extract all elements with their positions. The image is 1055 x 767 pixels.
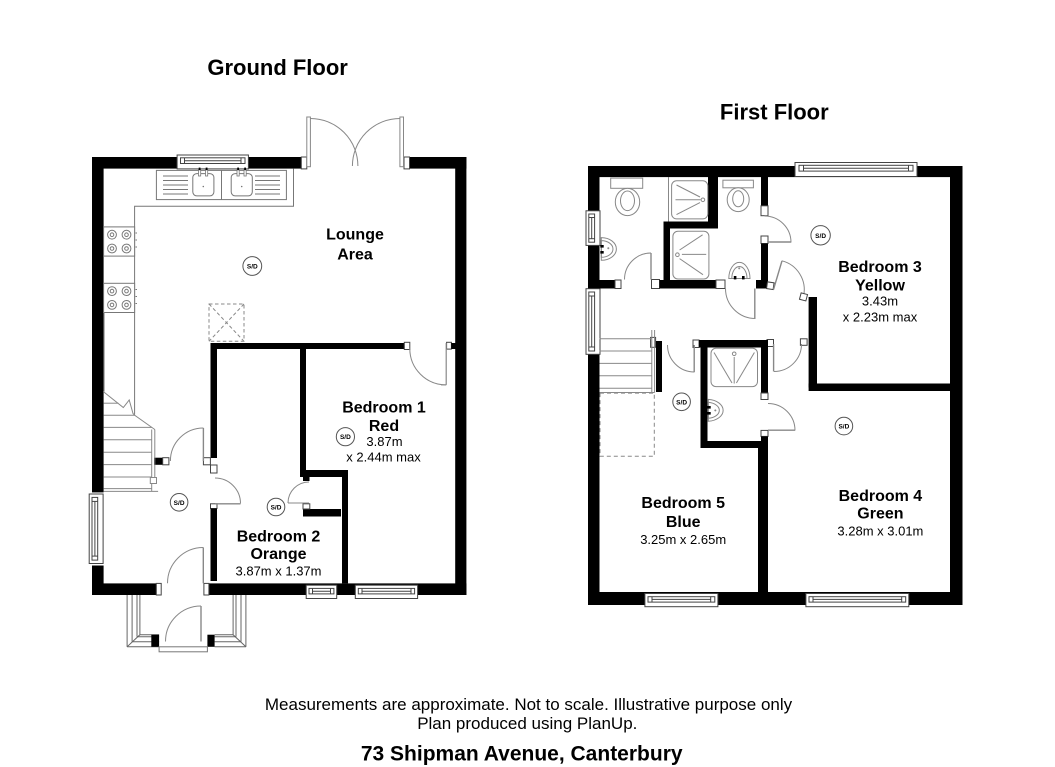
svg-text:Blue: Blue [666,514,701,531]
svg-text:S/D: S/D [815,233,826,240]
svg-text:S/D: S/D [676,399,687,406]
svg-text:Bedroom 1: Bedroom 1 [342,400,426,417]
svg-text:x 2.23m max: x 2.23m max [843,310,918,325]
svg-text:Bedroom 4: Bedroom 4 [839,488,923,505]
svg-text:S/D: S/D [838,424,849,431]
svg-text:x 2.44m max: x 2.44m max [346,450,421,465]
svg-text:73 Shipman Avenue, Canterbury: 73 Shipman Avenue, Canterbury [361,743,683,766]
svg-text:First Floor: First Floor [720,100,829,125]
svg-text:3.28m x 3.01m: 3.28m x 3.01m [837,523,923,538]
svg-text:S/D: S/D [174,500,185,507]
svg-text:Yellow: Yellow [855,278,905,295]
svg-text:S/D: S/D [247,264,258,271]
svg-text:Orange: Orange [250,546,306,563]
svg-text:3.43m: 3.43m [862,294,898,309]
svg-text:3.87m x 1.37m: 3.87m x 1.37m [236,564,322,579]
svg-text:Measurements are approximate.: Measurements are approximate. Not to sca… [265,695,793,714]
svg-text:3.25m x 2.65m: 3.25m x 2.65m [640,532,726,547]
svg-text:Bedroom 2: Bedroom 2 [237,529,321,546]
svg-text:3.87m: 3.87m [366,434,402,449]
svg-text:Lounge: Lounge [326,227,384,244]
svg-text:S/D: S/D [340,434,351,441]
svg-text:S/D: S/D [271,505,282,512]
svg-text:Red: Red [369,418,399,435]
svg-text:Green: Green [857,506,903,523]
svg-text:Area: Area [337,247,373,264]
svg-text:Bedroom 3: Bedroom 3 [838,259,922,276]
svg-text:Bedroom 5: Bedroom 5 [641,495,725,512]
svg-text:Plan produced using PlanUp.: Plan produced using PlanUp. [417,714,637,733]
svg-text:Ground Floor: Ground Floor [207,55,348,80]
